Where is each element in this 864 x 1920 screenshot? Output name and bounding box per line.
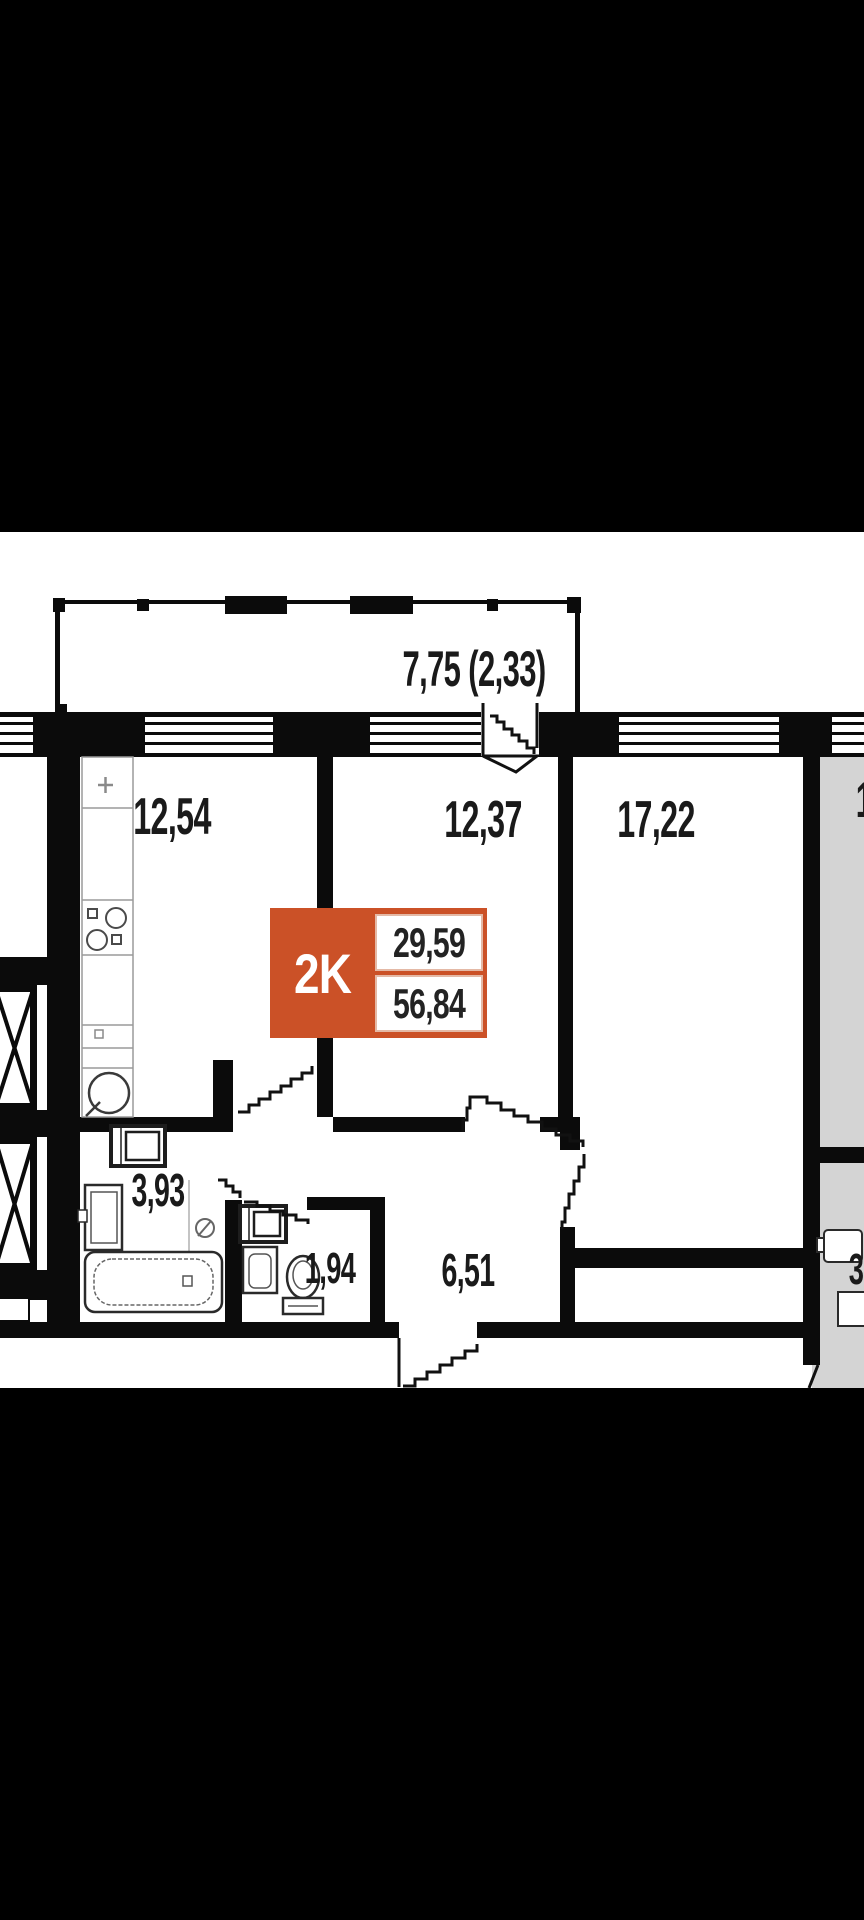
- washing-machine-icon: [111, 1126, 165, 1166]
- living-area-value: 29,59: [393, 919, 465, 967]
- total-area-value: 56,84: [393, 980, 465, 1028]
- balcony-area-label: 7,75 (2,33): [402, 640, 545, 698]
- unit-type-label: 2K: [279, 908, 365, 1038]
- bathroom-area-label: 3,93: [131, 1163, 184, 1217]
- toilet-area-label: 1,94: [305, 1244, 356, 1294]
- unit-badge: 2K 29,59 56,84: [270, 908, 487, 1038]
- neighbor-area-label-partial: 3: [849, 1245, 864, 1295]
- total-area-box: 56,84: [375, 975, 483, 1032]
- letterbox-top: [0, 0, 864, 532]
- screenshot-stage: 7,75 (2,33) 12,54 12,37 17,22 3,93 1,94 …: [0, 0, 864, 1920]
- letterbox-bottom: [0, 1388, 864, 1920]
- wc-sink-icon: [243, 1247, 277, 1293]
- kitchen-area-label: 12,54: [133, 787, 211, 847]
- living-room-area-label: 17,22: [617, 790, 695, 850]
- hallway-area-label: 6,51: [441, 1243, 494, 1297]
- door-handle-icon: [196, 1219, 214, 1237]
- elevator-cross-icon: [0, 990, 33, 1266]
- unit-areas: 29,59 56,84: [375, 908, 487, 1038]
- living-area-box: 29,59: [375, 914, 483, 971]
- neighbor-room-label-partial: 1: [856, 771, 864, 829]
- floor-plan: 7,75 (2,33) 12,54 12,37 17,22 3,93 1,94 …: [0, 532, 864, 1388]
- bedroom-area-label: 12,37: [444, 790, 522, 850]
- bathroom-sink-icon: [78, 1185, 122, 1250]
- bathtub-icon: [85, 1252, 222, 1312]
